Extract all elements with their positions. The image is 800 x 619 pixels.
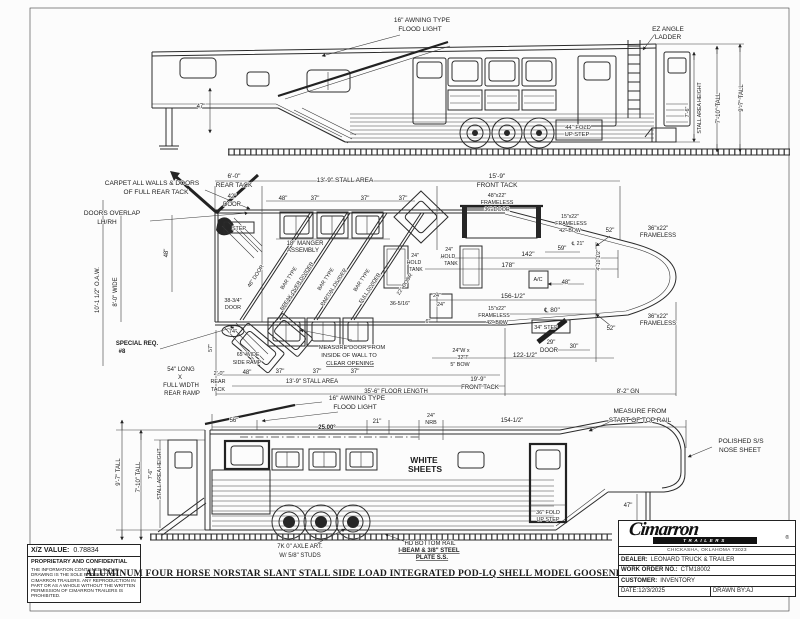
dealer-label: DEALER: <box>621 557 648 563</box>
dim-label: 154-1/2" <box>501 418 523 424</box>
dim-label: 156-1/2" <box>501 293 526 300</box>
dim-label: 36"x22" <box>648 314 669 320</box>
side-elevation-top: 16" AWNING TYPEFLOOD LIGHTEZ ANGLELADDER… <box>152 17 790 155</box>
bottom-rail-note: PLATE S.S. <box>416 555 449 561</box>
ez-angle-ladder-note: EZ ANGLE <box>652 26 684 33</box>
stall-height-dim: 7'-6" <box>148 469 154 479</box>
work-order-value: CTM18002 <box>681 567 711 573</box>
rear-ramp-note: X <box>178 375 182 381</box>
nose-sheet <box>650 418 685 492</box>
window <box>458 452 484 468</box>
stall-height-dim: 7'-6" <box>685 107 691 118</box>
dim-line <box>425 242 618 362</box>
ez-angle-ladder-note: LADDER <box>655 34 682 41</box>
overall-width-dim: 10'-1 1/2" O.A.W. <box>95 267 101 313</box>
blueprint-sheet: { "drawing_title": "ALUMINUM FOUR HORSE … <box>0 0 800 619</box>
dim-label: 37" <box>351 369 360 375</box>
open-door-swing <box>538 320 566 342</box>
dim-label: 2'-0" <box>214 371 225 377</box>
dim-label: STEP <box>232 226 246 232</box>
customer-value: INVENTORY <box>660 578 695 584</box>
dealer-row: DEALER: LEONARD TRUCK & TRAILER <box>619 554 795 565</box>
dim-label: FRAMELESS <box>481 200 514 206</box>
dim-label: 24"W x <box>452 348 469 354</box>
awning-flood-light-note: FLOOD LIGHT <box>333 404 376 411</box>
fold-up-step-note: 36" FOLD <box>536 510 560 516</box>
dim-label: 6'-0" <box>228 173 242 180</box>
dim-label: 21" <box>373 419 382 425</box>
title-block: Cimarron TRAILERS ® CHICKASHA, OKLAHOMA … <box>618 520 796 597</box>
rear-ramp-note: REAR RAMP <box>164 391 200 397</box>
axle-note: W/ 5/8" STUDS <box>279 553 320 559</box>
awning-flood-light-note: 16" AWNING TYPE <box>329 395 386 402</box>
wall-height-dim: 7'-10" TALL <box>136 461 142 492</box>
measure-door-note: CLEAR OPENING <box>326 361 374 367</box>
dim-label: 24" <box>437 302 445 308</box>
awning-flood-light-note: FLOOD LIGHT <box>398 26 441 33</box>
dim-label: FRONT TACK <box>461 385 499 391</box>
overall-height-dim: 9'-7" TALL <box>739 84 745 112</box>
manger-note: ASSEMBLY <box>287 248 319 254</box>
work-order-label: WORK ORDER NO.: <box>621 567 678 573</box>
rear-door <box>168 440 197 515</box>
window <box>180 58 216 78</box>
dim-label: 48" <box>164 249 170 258</box>
feed-window <box>448 58 482 86</box>
feed-windows <box>272 449 377 470</box>
dim-label: 15'-9" <box>489 173 506 180</box>
top-rail-note: START OF TOP RAIL <box>609 417 672 424</box>
dim-label: FRONT TACK <box>477 182 518 189</box>
dim-label: 36"x22" <box>648 226 669 232</box>
floor-plan: CARPET ALL WALLS & DOORSOF FULL REAR TAC… <box>84 171 676 397</box>
dim-label: 48" <box>279 196 288 202</box>
brand-logo: Cimarron TRAILERS ® <box>619 521 795 546</box>
dim-label: 6" <box>426 319 431 325</box>
dealer-value: LEONARD TRUCK & TRAILER <box>651 557 735 563</box>
dim-label: 29" <box>547 340 556 346</box>
nose-sheet-note: POLISHED S/S <box>718 438 764 445</box>
window <box>247 72 269 86</box>
customer-label: CUSTOMER: <box>621 578 657 584</box>
dim-label: 74" <box>229 329 237 335</box>
dim-label: FRAMELESS <box>555 221 587 227</box>
dim-label: FRAMELESS <box>640 233 676 239</box>
dim-label: 30" <box>570 344 579 350</box>
wheel <box>460 118 554 148</box>
fold-up-step-note: UP STEP <box>565 132 590 138</box>
dim-label: DOOR <box>225 305 241 311</box>
dim-label: 48" <box>243 370 252 376</box>
dim-label: 42" BOW <box>559 228 581 234</box>
dim-label: ℄ 80" <box>543 307 560 314</box>
date-label: DATE: <box>621 588 638 594</box>
hold-tank-note: 24" <box>411 253 419 259</box>
dim-label: REAR TACK <box>216 182 253 189</box>
dim-label: 15"x22" <box>561 214 579 220</box>
dim-label: 57" <box>208 344 214 352</box>
dim-label: 13'-9" STALL AREA <box>317 177 374 184</box>
doors-overlap-note: DOORS OVERLAP <box>84 210 140 217</box>
date-row: DATE: 12/3/2025 DRAWN BY: AJ <box>619 586 795 596</box>
dim-label: FRAMELESS <box>478 313 510 319</box>
work-order-row: WORK ORDER NO.: CTM18002 <box>619 565 795 576</box>
rear-ramp-note: 54" LONG <box>167 367 195 373</box>
brand-sub: TRAILERS <box>653 537 757 544</box>
nose-sheet-note: NOSE SHEET <box>719 447 761 454</box>
fold-up-step-note: UP STEP <box>537 517 560 523</box>
hold-tank-note: HOLD <box>407 260 422 266</box>
stall-height-dim: STALL AREA HEIGHT <box>157 448 163 500</box>
brand-address: CHICKASHA, OKLAHOMA 73023 <box>619 546 795 554</box>
drawn-by-label: DRAWN BY: <box>713 588 746 594</box>
xz-value-label: X/Z VALUE: <box>31 547 69 554</box>
xz-value: 0.78834 <box>73 547 98 554</box>
dim-label: NRB <box>425 420 437 426</box>
dim-label: 48" <box>562 280 571 286</box>
special-req-note: #8 <box>119 349 126 355</box>
dim-label: 37" <box>361 196 370 202</box>
dim-label: 142" <box>521 251 535 258</box>
awning-bar <box>278 42 448 96</box>
axle-note: 7K 0" AXLE ART. <box>277 544 323 550</box>
dim-label: 42" <box>228 194 237 200</box>
ez-angle-ladder <box>628 40 640 118</box>
dim-label: REAR <box>211 379 226 385</box>
manger-note: 18" MANGER <box>287 241 324 247</box>
feed-window <box>485 58 519 86</box>
gooseneck-jack <box>159 108 179 149</box>
measure-door-note: MEASURE DOOR F­ROM <box>319 345 386 351</box>
ac-unit-label: A/C <box>534 277 543 283</box>
date-value: 12/3/2025 <box>638 588 665 594</box>
measure-door-note: INSIDE OF WALL TO <box>321 353 377 359</box>
dim-label: 24" <box>427 413 435 419</box>
dim-label: 37" <box>313 369 322 375</box>
doors-overlap-note: LH/RH <box>97 219 117 226</box>
dim-label: 38-3/4" <box>224 298 241 304</box>
top-rail-note: MEASURE FROM <box>613 408 666 415</box>
dim-label: 37" <box>311 196 320 202</box>
dim-label: 19'-9" <box>470 377 485 383</box>
side-ramp-door <box>212 470 270 514</box>
side-ramp-note: 65" WIDE <box>237 352 260 358</box>
dim-label: TACK <box>211 387 225 393</box>
dim-label: 34" STEP <box>534 325 558 331</box>
angle-dim: 25.00° <box>318 425 336 431</box>
awning-flood-light-note: 16" AWNING TYPE <box>394 17 451 24</box>
registered-mark: ® <box>785 535 789 541</box>
roof-line <box>152 44 656 56</box>
customer-row: CUSTOMER: INVENTORY <box>619 575 795 586</box>
hold-tank-note: 24" <box>445 247 453 253</box>
feed-window <box>522 58 556 86</box>
carpet-note: OF FULL REAR TACK <box>124 189 190 196</box>
special-req-note: SPECIAL REQ. <box>116 341 159 347</box>
dim-label: ℄ 21" <box>571 241 585 247</box>
dim-label: 178" <box>501 262 515 269</box>
dim-label: 36" DOOR <box>484 207 510 213</box>
dim-label: 24" <box>433 293 441 299</box>
gooseneck-drop-dim: 47" <box>624 503 633 509</box>
stall-height-dim: STALL AREA HEIGHT <box>697 82 703 134</box>
dim-label: 52" <box>606 228 615 234</box>
drawn-by-value: AJ <box>746 588 753 594</box>
dim-label: 4'-10 1/2" <box>596 249 602 270</box>
dim-label: 122-1/2" <box>513 352 538 359</box>
dim-label: 8'-0" WIDE <box>113 277 119 306</box>
rear-ramp-note: FULL WIDTH <box>163 383 199 389</box>
dim-label: 42" BOW <box>486 320 508 326</box>
carpet-note: CARPET ALL WALLS & DOORS <box>105 180 200 187</box>
hold-tank-note: HOLD <box>441 254 456 260</box>
hold-tank-note: TANK <box>409 267 423 273</box>
bottom-rail-note: I-BEAM & 3/8" STEEL <box>398 548 460 554</box>
feed-windows <box>268 318 373 346</box>
dim-label: FRAMELESS <box>640 321 676 327</box>
gooseneck-length-dim: 8'-2" GN <box>617 389 640 395</box>
white-sheets-note: SHEETS <box>408 464 442 474</box>
dim-label: 36-5/16" <box>390 301 410 307</box>
dim-label: 56" <box>230 418 239 424</box>
dim-label: 15"x22" <box>488 306 506 312</box>
dim-label: 52" <box>607 326 616 332</box>
fold-up-step-note: 44" FOLD <box>565 125 591 131</box>
hold-tank-note: TANK <box>444 261 458 267</box>
dim-label: 59" <box>558 246 567 252</box>
dim-label: 13'-9" STALL AREA <box>286 379 338 385</box>
dim-label: 48"x22" <box>488 193 507 199</box>
dim-label: 37" <box>276 369 285 375</box>
dim-label: DOOR <box>223 202 242 208</box>
overall-height-dim: 9'-7" TALL <box>116 458 122 486</box>
bottom-rail-note: HD BOTTOM RAIL <box>405 541 457 547</box>
dim-label: 32"T <box>457 355 469 361</box>
dim-label: 37" <box>399 196 408 202</box>
side-ramp-note: SIDE RAMP <box>233 360 262 366</box>
skirt-slats <box>212 480 554 526</box>
awning-bar <box>205 405 295 424</box>
wall-height-dim: 7'-10" TALL <box>716 92 722 123</box>
dim-label: 5" BOW <box>450 362 470 368</box>
dim-label: DOOR <box>540 348 559 354</box>
gooseneck-drop-dim: 47" <box>197 104 206 110</box>
confidential-title: PROPRIETARY AND CONFIDENTIAL <box>28 557 140 566</box>
